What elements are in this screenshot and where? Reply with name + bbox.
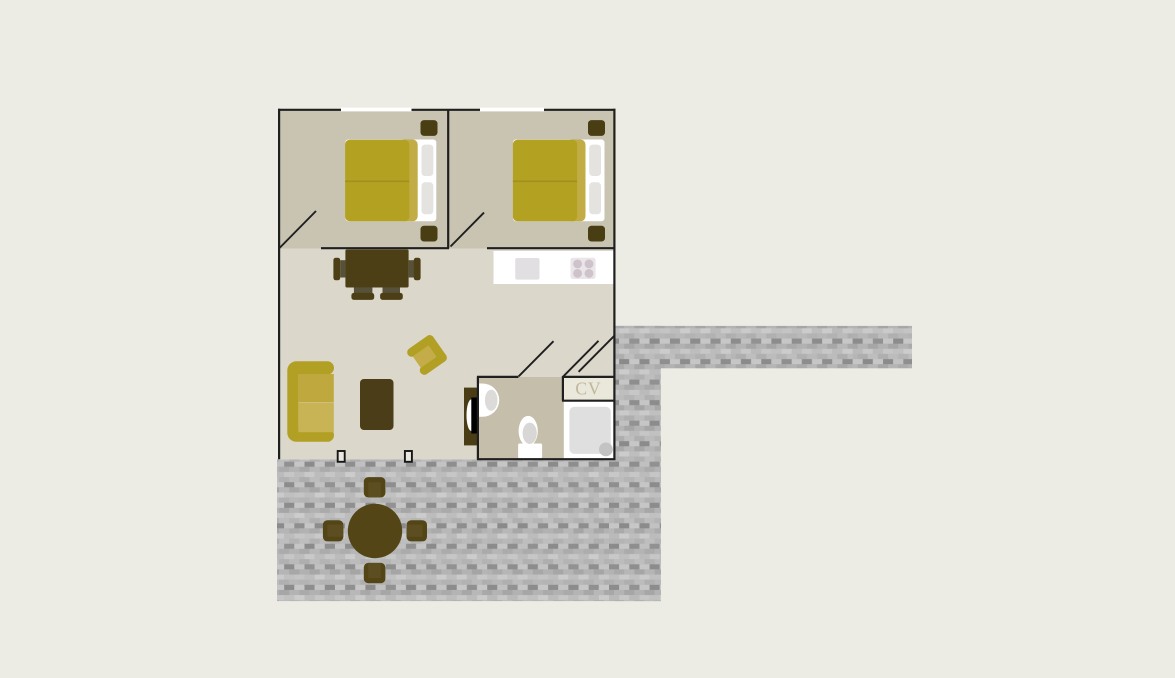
- svg-text:CV: CV: [575, 379, 601, 399]
